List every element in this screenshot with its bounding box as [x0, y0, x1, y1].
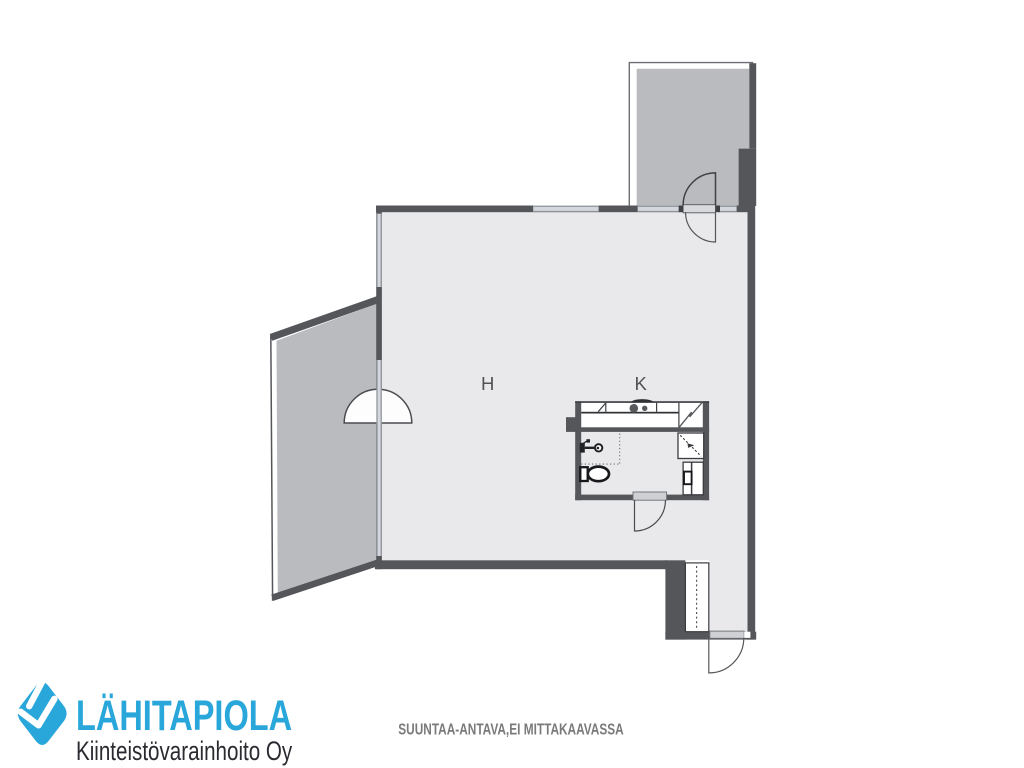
- svg-text:K: K: [635, 373, 648, 394]
- svg-text:Kiinteistövarainhoito Oy: Kiinteistövarainhoito Oy: [76, 738, 292, 767]
- svg-text:H: H: [481, 373, 494, 394]
- svg-text:LÄHITAPIOLA: LÄHITAPIOLA: [76, 692, 292, 741]
- svg-text:SUUNTAA-ANTAVA,EI MITTAKAAVASS: SUUNTAA-ANTAVA,EI MITTAKAAVASSA: [398, 721, 623, 738]
